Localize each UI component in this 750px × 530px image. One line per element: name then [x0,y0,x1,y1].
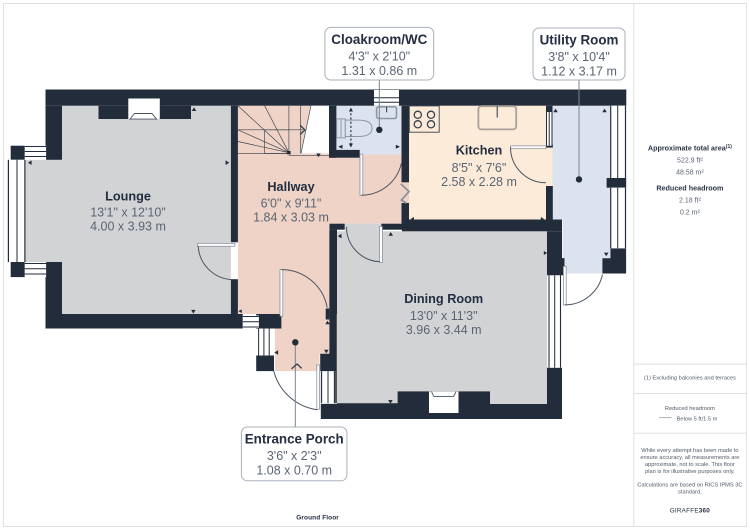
svg-text:Dining Room: Dining Room [404,292,483,306]
svg-text:standard.: standard. [678,490,702,496]
svg-text:0.2 m²: 0.2 m² [680,210,701,217]
svg-text:3'6" x 2'3": 3'6" x 2'3" [267,449,322,463]
svg-text:3.96 x 3.44 m: 3.96 x 3.44 m [406,323,482,337]
svg-text:(1) Excluding balconies and te: (1) Excluding balconies and terraces [644,376,736,382]
svg-text:Utility Room: Utility Room [540,33,619,48]
svg-text:6'0" x 9'11": 6'0" x 9'11" [261,197,322,211]
svg-text:GIRAFFE360: GIRAFFE360 [670,508,711,515]
svg-text:522.9 ft²: 522.9 ft² [677,158,703,165]
svg-text:2.58 x 2.28 m: 2.58 x 2.28 m [441,175,517,189]
svg-text:1.08 x 0.70 m: 1.08 x 0.70 m [256,464,332,478]
svg-text:Ground Floor: Ground Floor [296,515,339,522]
svg-text:4.00 x 3.93 m: 4.00 x 3.93 m [90,219,166,233]
svg-text:4'3" x 2'10": 4'3" x 2'10" [348,49,410,63]
svg-text:2.18 ft²: 2.18 ft² [679,198,701,205]
svg-text:Cloakroom/WC: Cloakroom/WC [331,32,427,47]
svg-text:While every attempt has been m: While every attempt has been made to [641,448,738,454]
svg-text:Lounge: Lounge [105,190,151,204]
svg-text:Reduced headroom: Reduced headroom [665,406,715,412]
svg-text:48.58 m²: 48.58 m² [676,170,704,177]
svg-text:3'8" x 10'4": 3'8" x 10'4" [548,50,610,64]
svg-text:Calculations are based on RICS: Calculations are based on RICS IPMS 3C [637,483,742,489]
svg-text:plan is for illustrative purpo: plan is for illustrative purposes only. [645,469,735,475]
svg-text:Entrance Porch: Entrance Porch [245,432,344,447]
svg-text:Approximate total area(1): Approximate total area(1) [648,144,732,153]
svg-text:8'5" x 7'6": 8'5" x 7'6" [452,161,507,175]
svg-text:Below 5 ft/1.5 m: Below 5 ft/1.5 m [677,417,718,423]
svg-text:1.31 x 0.86 m: 1.31 x 0.86 m [341,64,417,78]
svg-text:Reduced headroom: Reduced headroom [656,184,723,193]
svg-text:1.84 x 3.03 m: 1.84 x 3.03 m [253,211,329,225]
svg-text:Kitchen: Kitchen [456,144,503,158]
svg-text:approximate, not to scale. Thi: approximate, not to scale. This floor [645,462,735,468]
svg-text:Hallway: Hallway [267,180,314,194]
svg-text:13'1" x 12'10": 13'1" x 12'10" [90,206,166,220]
svg-text:13'0" x 11'3": 13'0" x 11'3" [410,309,478,323]
svg-text:1.12 x 3.17 m: 1.12 x 3.17 m [541,65,617,79]
svg-text:ensure accuracy, all measureme: ensure accuracy, all measurements are [640,455,739,461]
